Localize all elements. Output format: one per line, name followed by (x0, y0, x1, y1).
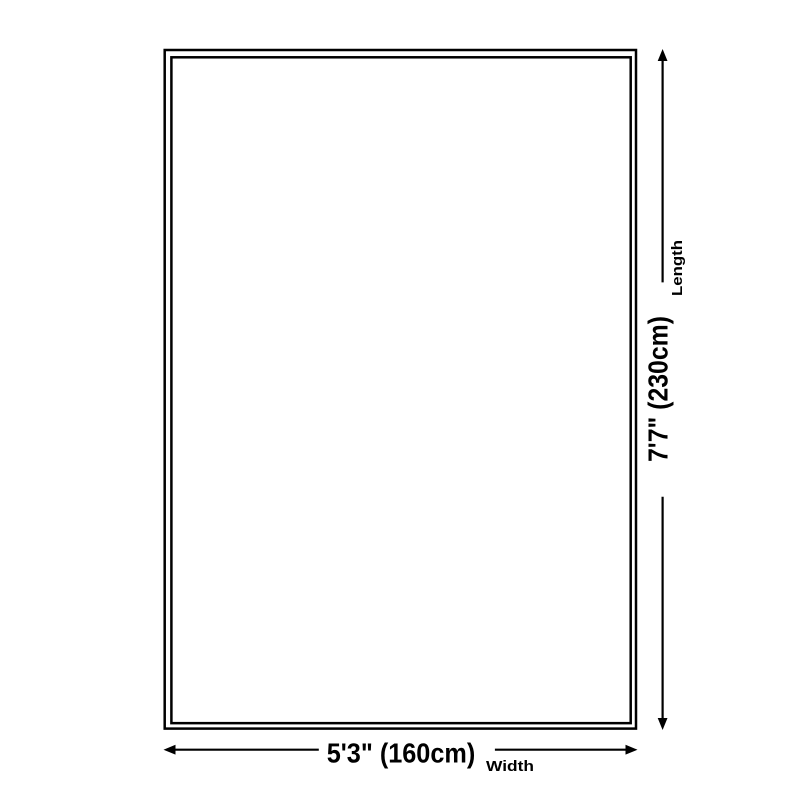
svg-text:7'7" (230cm): 7'7" (230cm) (643, 316, 674, 462)
svg-text:5'3" (160cm): 5'3" (160cm) (327, 737, 476, 768)
svg-text:Width: Width (486, 759, 534, 775)
svg-text:Length: Length (670, 240, 686, 296)
